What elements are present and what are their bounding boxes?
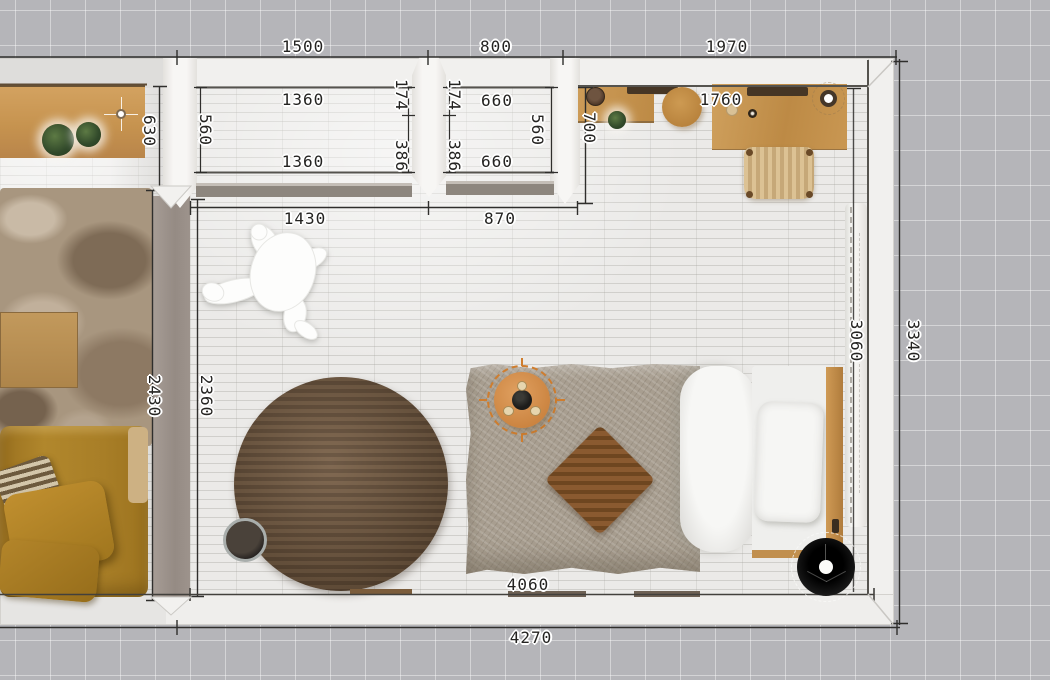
top-wall[interactable] [165,58,894,87]
dim-closet2-top: 660 [481,93,513,109]
closet1-sliding-door[interactable] [196,183,412,197]
person-figure[interactable] [190,210,340,345]
coffee-table[interactable] [0,312,78,388]
closet-pier-middle[interactable] [412,57,446,197]
closet-pier-right[interactable] [550,58,580,204]
sofa-armrest [128,427,148,503]
selection-tick-top [521,358,523,366]
selection-tick-bottom [521,434,523,442]
curtain-fold-line [850,207,853,523]
selection-tick-right [557,399,565,401]
dim-desk-width: 1760 [700,92,743,108]
dim-sideboard-depth: 630 [141,115,157,147]
dim-top-right: 1970 [706,39,749,55]
dim-pier1-lower: 386 [393,140,409,172]
selection-tick-left [479,399,487,401]
tray-cup-1 [517,381,527,391]
closet-pier-left[interactable] [163,58,197,208]
bed-pillow [754,401,824,523]
desk-plant[interactable] [608,111,626,129]
potted-plant-large[interactable] [42,124,74,156]
dim-closet2-bottom: 660 [481,154,513,170]
dim-width-outer: 4270 [510,630,553,646]
floor-lamp[interactable] [797,538,855,596]
baseboard-strip-2 [634,591,700,597]
dim-closet1-top: 1360 [282,92,325,108]
dim-opening-right: 870 [484,211,516,227]
desk-lamp[interactable] [820,90,837,107]
desk-cup [748,109,757,118]
chair-leg [806,149,813,156]
dim-pier2-lower: 386 [446,140,462,172]
chair-leg [746,191,753,198]
phone-on-headboard[interactable] [832,519,839,533]
curtain-fold-line [859,233,861,493]
tray-center [512,390,532,410]
potted-plant-small[interactable] [76,122,101,147]
planter-pot[interactable] [223,518,267,562]
lamp-hub [819,560,833,574]
curtain[interactable] [845,203,867,527]
dim-top-left: 1500 [282,39,325,55]
dim-pier1-upper: 174 [393,79,409,111]
round-rug[interactable] [234,377,448,591]
tray-cup-3 [530,406,541,416]
dim-desk-zone-depth: 700 [581,112,597,144]
dim-pier2-upper: 174 [446,79,462,111]
chair-leg [746,149,753,156]
right-wall[interactable] [868,58,894,625]
tray-cup-2 [503,406,514,416]
dim-closet1-depth: 560 [197,114,213,146]
sideboard[interactable] [0,84,145,158]
bowl-decor[interactable] [586,87,605,106]
dim-width-inner: 4060 [507,577,550,593]
bed-duvet[interactable] [680,366,756,552]
bottom-wall[interactable] [0,594,894,625]
dim-opening-left: 1430 [284,211,327,227]
wood-stool[interactable] [662,87,702,127]
rattan-chair[interactable] [744,147,814,199]
dim-partition-inner: 2360 [198,375,214,418]
dim-top-mid: 800 [480,39,512,55]
baseboard-strip-3 [350,589,412,595]
decor-item[interactable] [116,109,126,119]
dim-closet1-bottom: 1360 [282,154,325,170]
chair-leg [806,191,813,198]
dim-height-inner: 3060 [848,320,864,363]
dim-closet2-depth: 560 [529,114,545,146]
floor-plan-canvas: 1500 800 1970 1360 660 1760 174 174 560 … [0,0,1050,680]
closet2-sliding-door[interactable] [446,181,554,195]
desk-shelf [747,87,808,96]
dim-partition-outer: 2430 [146,375,162,418]
sofa-pillow-camel-2[interactable] [0,539,100,603]
dim-height-outer: 3340 [905,320,921,363]
